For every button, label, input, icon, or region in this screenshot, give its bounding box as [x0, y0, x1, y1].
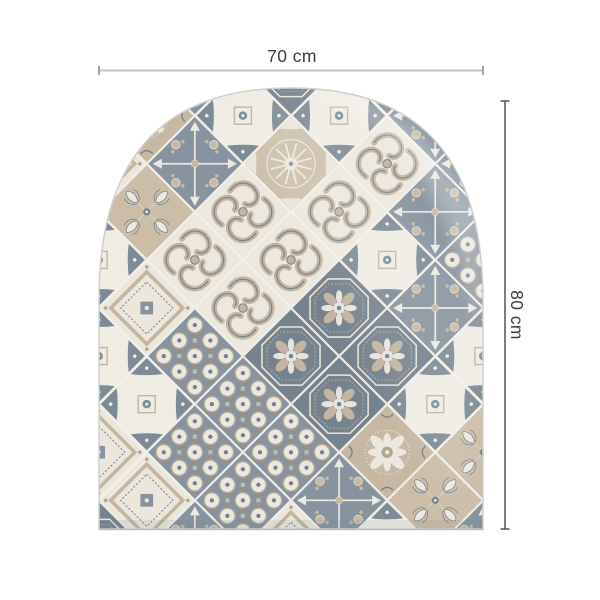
tile-octagon-medallion: [3, 260, 99, 356]
tile-beige-rosette: [147, 596, 243, 600]
tile-corner-lace: [3, 68, 99, 164]
tile-arrow-cross: [0, 404, 51, 500]
tile-arrow-cross: [0, 260, 3, 356]
tile-mosaic-circles: [483, 164, 579, 260]
tile-diamond-frame: [579, 260, 600, 356]
tile-diamond-frame: [99, 0, 195, 68]
tile-beige-rosette: [3, 356, 99, 452]
tile-starburst: [339, 596, 435, 600]
tile-mosaic-circles: [243, 596, 339, 600]
tile-octagon-medallion: [387, 0, 483, 68]
tile-beige-rosette: [0, 164, 3, 260]
tile-mosaic-circles: [579, 356, 600, 452]
tile-mosaic-circles: [3, 164, 99, 260]
tile-diamond-frame: [243, 0, 339, 20]
tile-beige-rosette: [483, 452, 579, 548]
product-dimension-image: 70 cm 80 cm: [0, 0, 600, 600]
tile-arrow-cross: [579, 164, 600, 260]
width-dimension: 70 cm: [99, 46, 483, 75]
tile-mosaic-circles: [339, 0, 435, 20]
tile-corner-lace: [0, 308, 51, 404]
tile-diamond-frame: [483, 68, 579, 164]
dimension-diagram-svg: 70 cm 80 cm: [0, 0, 600, 600]
height-dimension-label: 80 cm: [507, 290, 527, 340]
panel-bottom-shade: [99, 520, 483, 529]
tile-corner-lace: [531, 116, 600, 212]
tile-arrow-cross: [0, 116, 51, 212]
tile-octagon-medallion: [291, 548, 387, 600]
tile-beige-rosette: [531, 308, 600, 404]
height-dimension: 80 cm: [501, 101, 528, 529]
tile-diamond-frame: [0, 356, 3, 452]
tile-starburst: [99, 548, 195, 600]
tile-corner-lace: [195, 548, 291, 600]
tile-diamond-frame: [531, 404, 600, 500]
width-dimension-label: 70 cm: [267, 46, 317, 66]
tile-beige-rosette: [147, 0, 243, 20]
tile-corner-lace: [3, 452, 99, 548]
tile-corner-lace: [0, 212, 51, 308]
tile-beige-rosette: [531, 212, 600, 308]
tile-octagon-medallion: [387, 548, 483, 600]
tile-arrow-cross: [483, 356, 579, 452]
tile-diamond-frame: [483, 260, 579, 356]
